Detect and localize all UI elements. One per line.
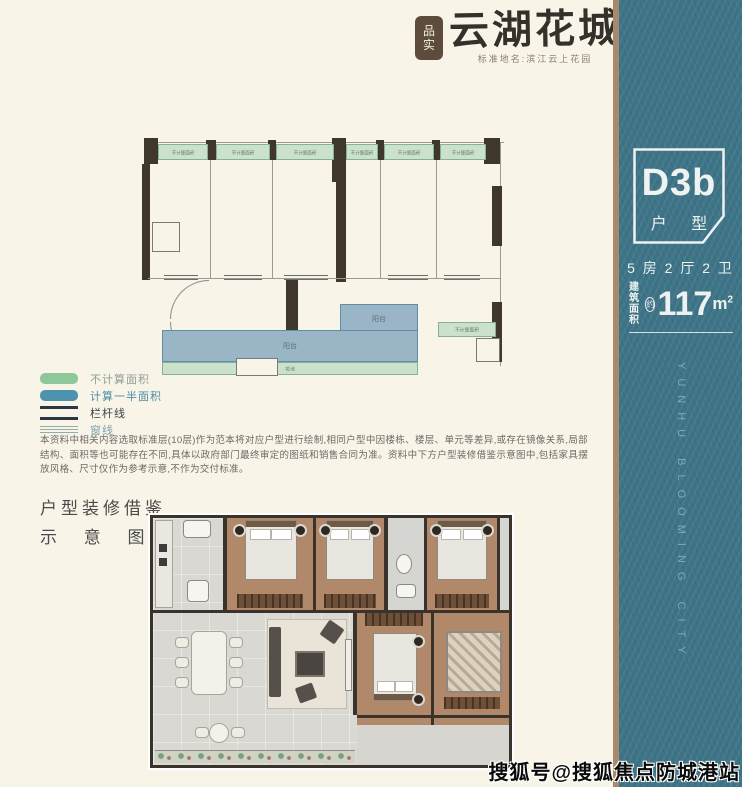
bedroom-3	[427, 518, 497, 610]
canopy-bed	[446, 631, 502, 693]
approx-circle: 约	[645, 297, 655, 312]
right-shaft-box	[476, 338, 500, 362]
dining-area	[153, 613, 261, 715]
toilet	[396, 554, 412, 574]
wall-line	[148, 278, 500, 279]
bay-window-strip: 不计算面积	[384, 144, 434, 160]
brand-text-block: 云湖花城 标准地名:滨江云上花园	[449, 8, 621, 65]
bedside-table	[412, 635, 425, 648]
bathroom-1	[388, 518, 424, 610]
seal-char-top: 品	[423, 24, 435, 38]
right-bay-strip	[357, 725, 509, 765]
wall-line	[148, 142, 504, 143]
chair	[195, 727, 209, 738]
kitchen-island	[187, 580, 209, 602]
wall-pier	[336, 182, 346, 282]
chair	[229, 677, 243, 688]
bay-window-strip: 不计算面积	[158, 144, 208, 160]
bedroom-1	[227, 518, 313, 610]
legend-label: 栏杆线	[90, 405, 126, 421]
wall-pier	[484, 138, 500, 164]
pillow	[441, 529, 461, 540]
legend-item-no-count: 不计算面积	[40, 372, 162, 385]
page: 品 实 云湖花城 标准地名:滨江云上花园 不计算面积 不计算面积 不计算面积 不…	[0, 0, 742, 787]
bedside-table	[481, 524, 494, 537]
seal-char-bottom: 实	[423, 38, 435, 52]
tv-cabinet	[345, 639, 352, 691]
area-unit-m: m	[712, 294, 727, 313]
wall-pier	[142, 164, 150, 280]
wall	[357, 715, 509, 718]
balcony	[153, 715, 357, 765]
chair	[229, 657, 243, 668]
stove-burner	[159, 544, 167, 552]
section-title: 户型装修借鉴 示 意 图 ◢	[40, 494, 166, 548]
wall-pier	[144, 138, 158, 164]
legend-item-half-count: 计算一半面积	[40, 389, 162, 402]
bed	[326, 520, 374, 580]
strip-label: 不计算面积	[452, 149, 475, 156]
chair	[175, 677, 189, 688]
bedside-table	[368, 524, 381, 537]
disclaimer-text: 本资料中相关内容选取标准层(10层)作为范本将对应户型进行绘制,相同户型中因楼栋…	[40, 434, 588, 478]
wall-line	[436, 160, 437, 278]
area-label-line2: 面积	[629, 304, 642, 326]
headboard	[327, 521, 373, 527]
legend-label: 计算一半面积	[90, 388, 162, 404]
bedside-table	[319, 524, 332, 537]
bay-window-strip: 不计算面积	[276, 144, 334, 160]
living-room	[261, 613, 353, 715]
planter-row	[155, 750, 355, 763]
wardrobe	[365, 613, 423, 626]
chair	[231, 727, 245, 738]
wardrobe	[444, 697, 500, 709]
strip-label: 不计算面积	[351, 149, 374, 156]
bedside-table	[233, 524, 246, 537]
bed	[437, 520, 487, 580]
strip-label: 不计算面积	[294, 149, 317, 156]
headboard	[374, 694, 416, 700]
strip-label: 不计算面积	[398, 149, 421, 156]
layout-summary: 5 房 2 厅 2 卫	[619, 258, 742, 278]
floorplan-line-drawing: 不计算面积 不计算面积 不计算面积 不计算面积 不计算面积 不计算面积	[140, 126, 512, 376]
bedroom-5	[434, 613, 509, 725]
strip-label: 不计算面积	[172, 149, 195, 156]
unit-type-label: 户 型	[633, 210, 725, 234]
bedside-table	[412, 693, 425, 706]
balcony-label: 阳台	[283, 341, 297, 351]
chair	[175, 657, 189, 668]
pillow	[330, 529, 349, 540]
strip-label: 不计算面积	[455, 326, 479, 333]
wardrobe	[237, 594, 303, 608]
balcony-table	[209, 723, 229, 743]
bedside-table	[294, 524, 307, 537]
headboard	[246, 521, 296, 527]
bay-window-strip: 不计算面积	[346, 144, 378, 160]
vertical-brand-text: YUNHU BLOOMING CITY	[675, 362, 687, 663]
headboard	[438, 521, 486, 527]
entry-step	[236, 358, 278, 376]
dining-table	[191, 631, 227, 695]
unit-code-box: D3b 户 型	[633, 148, 725, 244]
chair	[229, 637, 243, 648]
legend-swatch-blue	[40, 390, 78, 401]
legend-item-railing: 栏杆线	[40, 406, 162, 419]
balcony-half-area-lower: 阳台	[162, 330, 418, 362]
section-title-line2-text: 示 意 图	[40, 523, 155, 548]
bay-window-strip: 不计算面积	[440, 144, 486, 160]
wall-pier	[332, 138, 346, 182]
pillow	[463, 529, 483, 540]
unit-code: D3b	[633, 162, 725, 205]
pillow	[271, 529, 292, 540]
wall-line	[210, 160, 211, 278]
stove-burner	[159, 558, 167, 566]
chair	[175, 637, 189, 648]
fridge	[183, 520, 211, 538]
section-title-line2: 示 意 图 ◢	[40, 523, 166, 548]
flowerbed-label: 花池	[285, 365, 295, 372]
pillow	[395, 681, 413, 692]
coffee-table	[295, 651, 325, 677]
area-label: 建筑 面积	[629, 282, 642, 326]
wardrobe	[324, 594, 376, 608]
area-row: 建筑 面积 约 117 m2	[629, 282, 733, 333]
area-unit-sup: 2	[727, 294, 733, 305]
strip-label: 不计算面积	[232, 149, 255, 156]
sofa	[269, 627, 281, 697]
balcony-label: 阳台	[372, 314, 386, 324]
pillow	[250, 529, 271, 540]
legend: 不计算面积 计算一半面积 栏杆线 窗线	[40, 372, 162, 436]
section-title-line1: 户型装修借鉴	[40, 494, 166, 519]
legend-label: 不计算面积	[90, 371, 150, 387]
sink	[396, 584, 416, 598]
legend-swatch-window-lines	[40, 426, 78, 433]
legend-swatch-railing-lines	[40, 406, 78, 420]
area-label-line1: 建筑	[629, 282, 642, 304]
flowerbed-strip: 花池	[162, 362, 418, 375]
bedside-table	[430, 524, 443, 537]
area-value: 117	[657, 288, 712, 320]
pillow	[377, 681, 395, 692]
bed	[373, 633, 417, 701]
brand-seal-icon: 品 实	[415, 16, 443, 60]
bedroom-2	[316, 518, 384, 610]
bedroom-4	[357, 613, 431, 725]
floorplan-furnished-render	[150, 515, 512, 768]
wardrobe	[435, 594, 489, 608]
brand-logo: 品 实 云湖花城 标准地名:滨江云上花园	[415, 8, 621, 65]
brand-name: 云湖花城	[449, 7, 622, 54]
bed	[245, 520, 297, 580]
door-arc	[170, 280, 209, 319]
wall-line	[380, 160, 381, 278]
kitchen	[153, 518, 223, 610]
wall-pier	[492, 186, 502, 246]
shaft-box	[152, 222, 180, 252]
bathroom-2	[500, 518, 509, 610]
sidebar-panel: D3b 户 型 5 房 2 厅 2 卫 建筑 面积 约 117 m2 YUNHU…	[613, 0, 742, 787]
right-bay-strip: 不计算面积	[438, 322, 496, 337]
wall-line	[272, 160, 273, 278]
legend-swatch-green	[40, 373, 78, 384]
watermark-text: 搜狐号@搜狐焦点防城港站	[488, 756, 740, 785]
area-unit: m2	[712, 294, 733, 314]
bay-window-strip: 不计算面积	[216, 144, 270, 160]
